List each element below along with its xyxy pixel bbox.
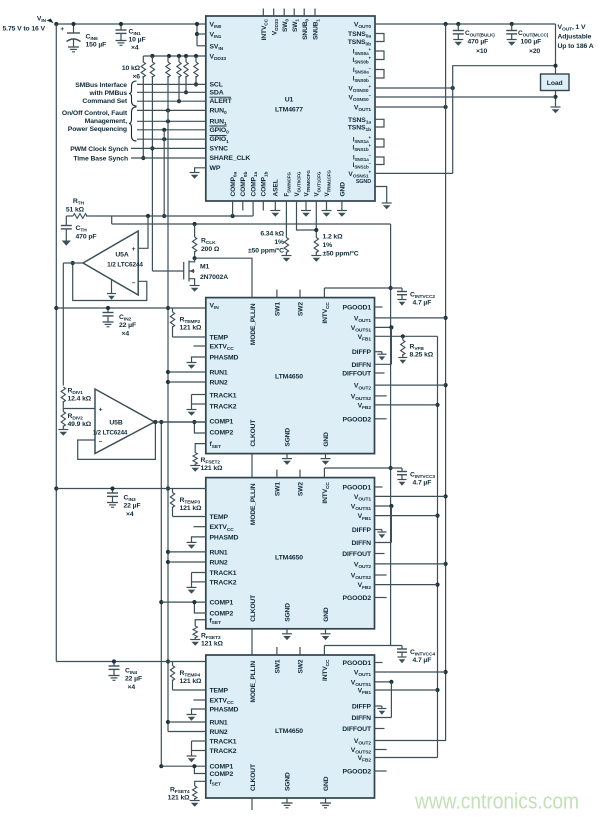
svg-text:2N7002A: 2N7002A <box>200 274 228 281</box>
svg-text:10 kΩ: 10 kΩ <box>122 65 141 72</box>
svg-text:DIFFN: DIFFN <box>351 362 371 369</box>
svg-text:–: – <box>132 280 136 287</box>
svg-text:6.34 kΩ: 6.34 kΩ <box>260 231 284 238</box>
svg-text:RUN1: RUN1 <box>210 370 228 377</box>
svg-text:TRACK1: TRACK1 <box>210 570 237 577</box>
svg-text:SW1: SW1 <box>275 482 282 496</box>
svg-text:Adjustable: Adjustable <box>558 34 592 41</box>
svg-text:LTM4650: LTM4650 <box>275 374 303 381</box>
svg-text:PHASMD: PHASMD <box>210 534 239 541</box>
svg-text:GND: GND <box>323 607 330 622</box>
svg-text:TRACK2: TRACK2 <box>210 579 237 586</box>
svg-text:PGOOD2: PGOOD2 <box>343 769 372 776</box>
svg-text:DIFFP: DIFFP <box>352 527 372 534</box>
svg-text:SGND: SGND <box>285 428 292 447</box>
svg-text:SDA: SDA <box>210 89 224 96</box>
svg-text:×4: ×4 <box>128 684 136 691</box>
svg-text:SW1: SW1 <box>275 302 282 316</box>
svg-text:COMP1: COMP1 <box>210 419 234 426</box>
svg-text:TEMP: TEMP <box>210 335 229 342</box>
svg-text:RUN2: RUN2 <box>210 380 228 387</box>
svg-text:PGOOD2: PGOOD2 <box>343 416 372 423</box>
svg-text:+: + <box>132 246 136 253</box>
svg-text:MODE_PLLIN: MODE_PLLIN <box>250 483 257 525</box>
svg-text:150 µF: 150 µF <box>86 42 107 49</box>
svg-text:1/2 LTC6244: 1/2 LTC6244 <box>93 430 128 437</box>
svg-text:49.9 kΩ: 49.9 kΩ <box>68 421 92 428</box>
svg-text:22 µF: 22 µF <box>124 503 141 510</box>
svg-text:COMP2: COMP2 <box>210 611 234 618</box>
svg-text:PWM Clock Synch: PWM Clock Synch <box>70 146 128 153</box>
svg-text:SCL: SCL <box>210 81 223 88</box>
svg-text:RUN1: RUN1 <box>210 720 228 727</box>
svg-text:COMP1: COMP1 <box>210 764 234 771</box>
svg-text:TRACK1: TRACK1 <box>210 393 237 400</box>
svg-text:1%: 1% <box>323 242 333 249</box>
svg-text:SGND: SGND <box>356 179 371 185</box>
svg-text:470 µF: 470 µF <box>468 39 489 46</box>
svg-text:200 Ω: 200 Ω <box>201 246 220 253</box>
svg-text:×6: ×6 <box>132 74 140 81</box>
svg-text:GND: GND <box>339 182 346 197</box>
svg-text:SW2: SW2 <box>298 482 305 496</box>
svg-text:+: + <box>60 26 64 33</box>
svg-text:PGOOD1: PGOOD1 <box>343 660 372 667</box>
svg-text:5.75 V to 16 V: 5.75 V to 16 V <box>3 26 46 33</box>
svg-text:M1: M1 <box>200 264 210 271</box>
svg-text:with PMBus: with PMBus <box>88 90 127 97</box>
svg-text:12.4 kΩ: 12.4 kΩ <box>68 396 92 403</box>
svg-text:LTM4650: LTM4650 <box>275 555 303 562</box>
svg-text:Up to 186 A: Up to 186 A <box>558 43 594 50</box>
svg-text:Command Set: Command Set <box>82 98 127 105</box>
svg-text:SHARE_CLK: SHARE_CLK <box>210 155 251 162</box>
svg-text:COMP1: COMP1 <box>210 600 234 607</box>
svg-text:×10: ×10 <box>476 48 488 55</box>
svg-text:TRACK2: TRACK2 <box>210 404 237 411</box>
svg-text:PHASMD: PHASMD <box>210 355 239 362</box>
svg-text:SYNC: SYNC <box>210 145 229 152</box>
svg-text:PGOOD1: PGOOD1 <box>343 305 372 312</box>
svg-text:Load: Load <box>547 80 563 87</box>
svg-text:LTM4650: LTM4650 <box>275 728 303 735</box>
svg-text:×4: ×4 <box>122 331 130 338</box>
svg-text:SW1: SW1 <box>275 659 282 673</box>
svg-text:Time Base Synch: Time Base Synch <box>73 156 128 163</box>
svg-text:±50 ppm/°C: ±50 ppm/°C <box>248 247 284 255</box>
svg-text:±50 ppm/°C: ±50 ppm/°C <box>323 250 359 258</box>
svg-text:1%: 1% <box>274 239 284 246</box>
svg-text:RUN2: RUN2 <box>210 560 228 567</box>
svg-text:×4: ×4 <box>126 511 134 518</box>
svg-text:Management,: Management, <box>85 118 128 125</box>
svg-text:22 µF: 22 µF <box>125 676 142 683</box>
svg-text:8.25 kΩ: 8.25 kΩ <box>410 352 434 359</box>
svg-text:MODE_PLLIN: MODE_PLLIN <box>250 303 257 345</box>
svg-text:TEMP: TEMP <box>210 514 229 521</box>
svg-text:121 kΩ: 121 kΩ <box>168 795 191 802</box>
svg-text:SW2: SW2 <box>298 659 305 673</box>
svg-text:TRACK2: TRACK2 <box>210 748 237 755</box>
svg-text:100 µF: 100 µF <box>521 39 542 46</box>
svg-text:121 kΩ: 121 kΩ <box>180 325 203 332</box>
svg-text:COMP2: COMP2 <box>210 771 234 778</box>
svg-text:–: – <box>99 438 103 445</box>
svg-text:GND: GND <box>323 776 330 791</box>
svg-text:DIFFOUT: DIFFOUT <box>342 551 372 558</box>
svg-text:+: + <box>99 407 103 414</box>
svg-text:PGOOD2: PGOOD2 <box>343 595 372 602</box>
svg-text:121 kΩ: 121 kΩ <box>180 505 203 512</box>
svg-text:×20: ×20 <box>529 48 541 55</box>
svg-text:CLKOUT: CLKOUT <box>250 595 257 622</box>
svg-text:RUN1: RUN1 <box>210 549 228 556</box>
svg-text:TEMP: TEMP <box>210 688 229 695</box>
svg-text:DIFFOUT: DIFFOUT <box>342 371 372 378</box>
svg-text:DIFFOUT: DIFFOUT <box>342 726 372 733</box>
svg-text:WP: WP <box>210 165 221 172</box>
svg-text:1/2 LTC6244: 1/2 LTC6244 <box>107 262 143 269</box>
svg-text:GND: GND <box>323 432 330 447</box>
svg-text:SW2: SW2 <box>298 302 305 316</box>
svg-text:10 µF: 10 µF <box>129 37 146 44</box>
svg-text:121 kΩ: 121 kΩ <box>201 465 224 472</box>
svg-text:U5B: U5B <box>109 420 122 427</box>
svg-text:U5A: U5A <box>115 252 128 259</box>
svg-text:COMP2: COMP2 <box>210 430 234 437</box>
svg-text:www.cntronics.com: www.cntronics.com <box>414 789 579 814</box>
svg-text:TRACK1: TRACK1 <box>210 739 237 746</box>
svg-text:DIFFN: DIFFN <box>351 715 371 722</box>
svg-text:4.7 µF: 4.7 µF <box>413 300 432 307</box>
svg-text:DIFFP: DIFFP <box>352 349 372 356</box>
svg-text:ALERT: ALERT <box>210 98 233 105</box>
svg-text:MODE_PLLIN: MODE_PLLIN <box>250 661 257 703</box>
svg-text:Power Sequencing: Power Sequencing <box>68 126 127 133</box>
svg-text:PGOOD1: PGOOD1 <box>343 485 372 492</box>
svg-text:DIFFP: DIFFP <box>352 704 372 711</box>
svg-text:470 pF: 470 pF <box>76 234 97 241</box>
svg-text:22 µF: 22 µF <box>119 322 136 329</box>
svg-text:RUN2: RUN2 <box>210 729 228 736</box>
svg-text:4.7 µF: 4.7 µF <box>413 480 432 487</box>
svg-text:CLKOUT: CLKOUT <box>250 764 257 791</box>
svg-text:PHASMD: PHASMD <box>210 707 239 714</box>
svg-text:121 kΩ: 121 kΩ <box>180 678 203 685</box>
svg-text:LTM4677: LTM4677 <box>275 107 303 114</box>
svg-text:CLKOUT: CLKOUT <box>250 420 257 447</box>
svg-text:121 kΩ: 121 kΩ <box>201 641 224 648</box>
svg-text:SGND: SGND <box>285 603 292 622</box>
svg-text:SGND: SGND <box>285 772 292 791</box>
svg-text:×4: ×4 <box>131 45 139 52</box>
svg-text:DIFFN: DIFFN <box>351 540 371 547</box>
svg-text:U1: U1 <box>285 97 294 104</box>
svg-text:51 kΩ: 51 kΩ <box>66 207 85 214</box>
svg-text:4.7 µF: 4.7 µF <box>413 657 432 664</box>
svg-text:SMBus Interface: SMBus Interface <box>75 82 127 89</box>
svg-text:On/Off Control, Fault: On/Off Control, Fault <box>62 110 128 117</box>
svg-text:ASEL: ASEL <box>273 179 280 196</box>
svg-text:1.2 kΩ: 1.2 kΩ <box>323 234 344 241</box>
